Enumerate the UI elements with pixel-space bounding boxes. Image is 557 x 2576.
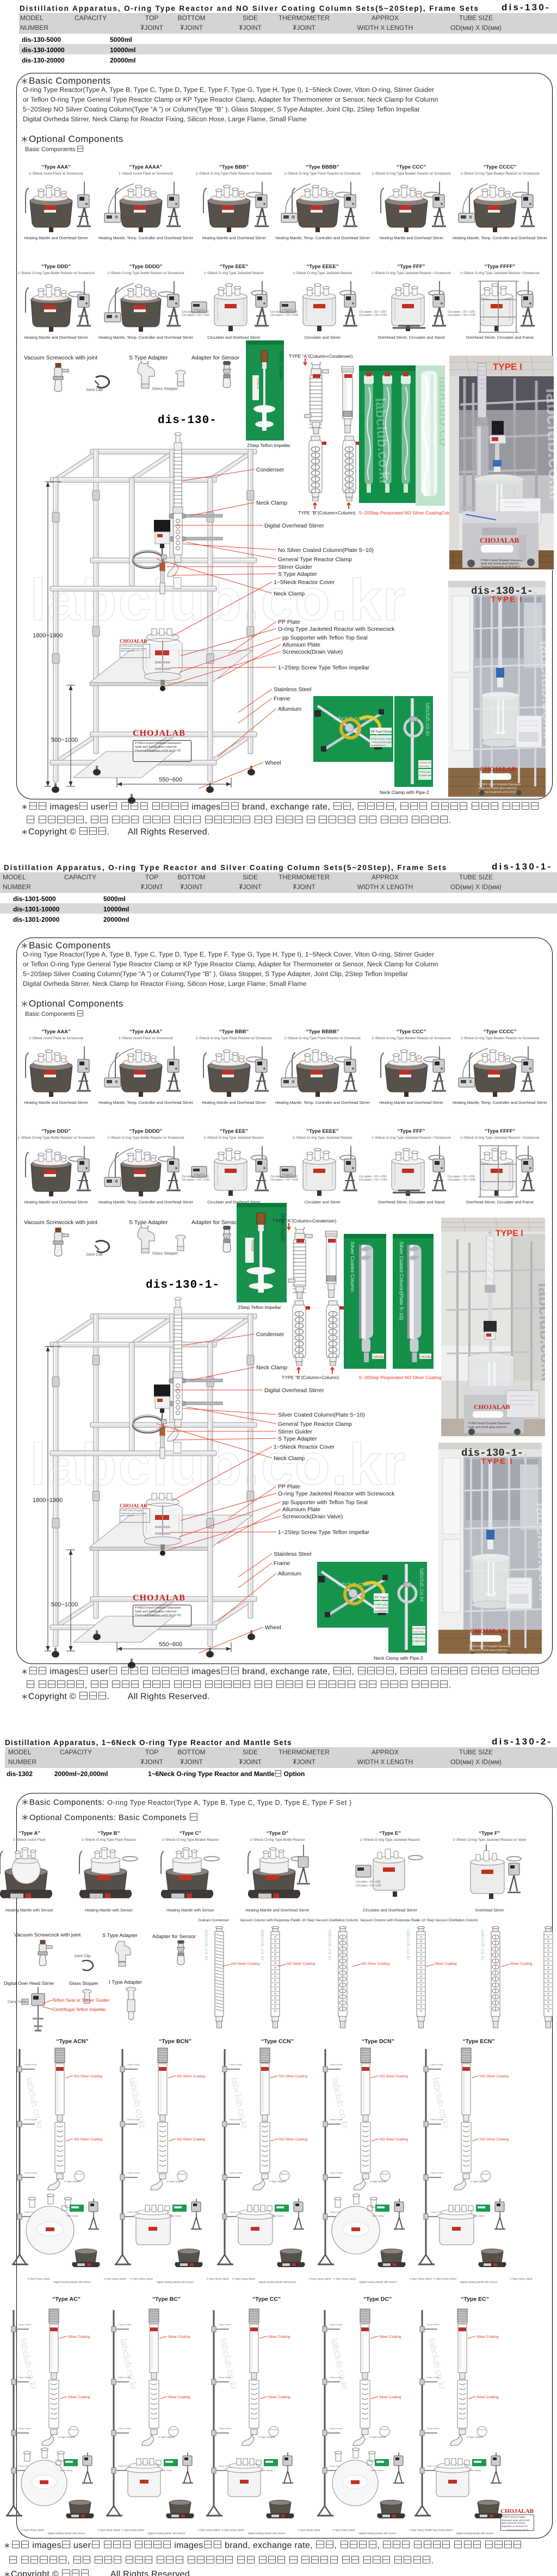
svg-text:Silver Coating: Silver Coating xyxy=(379,2335,401,2339)
svg-text:Silver Coating: Silver Coating xyxy=(168,2335,190,2339)
svg-text:Vaccum: Vaccum xyxy=(280,2172,288,2175)
svg-text:550~600: 550~600 xyxy=(159,777,182,783)
svg-text:pp Supporter with Teflon Top S: pp Supporter with Teflon Top Seal xyxy=(282,635,368,641)
svg-text:Clamp Holder: Clamp Holder xyxy=(426,2427,440,2430)
svg-text:NO Silver Coating: NO Silver Coating xyxy=(177,2075,205,2078)
svg-text:Clamp Holder: Clamp Holder xyxy=(229,2118,243,2121)
svg-text:NO Silver Coating: NO Silver Coating xyxy=(279,2138,307,2142)
svg-text:labclub.co.kr: labclub.co.kr xyxy=(127,2077,147,2130)
svg-text:Stainless Steel: Stainless Steel xyxy=(274,686,311,693)
svg-text:1800~1900: 1800~1900 xyxy=(33,1497,63,1504)
svg-text:Clamp Holder: Clamp Holder xyxy=(18,2427,32,2430)
svg-text:Neck Clamp: Neck Clamp xyxy=(372,2214,385,2217)
svg-text:Stirrer Guider: Stirrer Guider xyxy=(279,1213,287,1242)
svg-text:Thermal Expansion a=32.5x10-7: Thermal Expansion a=32.5x10-7 xyxy=(481,566,521,569)
svg-text:labclub.co.kr: labclub.co.kr xyxy=(229,2077,250,2130)
svg-text:labclub.co.kr: labclub.co.kr xyxy=(424,703,431,736)
svg-text:1~5Neck Reactor Cover: 1~5Neck Reactor Cover xyxy=(274,579,335,586)
svg-text:Digital Overhead Stirrer: Digital Overhead Stirrer xyxy=(264,523,324,529)
svg-text:TYPE I: TYPE I xyxy=(491,595,523,604)
svg-text:PP Plate: PP Plate xyxy=(278,619,300,625)
svg-text:PYREX brand Chojalab Glassware: PYREX brand Chojalab Glassware xyxy=(469,1645,511,1648)
svg-text:Stirrer Guider: Stirrer Guider xyxy=(278,350,284,380)
svg-text:No Silver Coated Column(Plate: No Silver Coated Column(Plate 5~10) xyxy=(278,547,374,554)
svg-text:TYPE I: TYPE I xyxy=(496,1229,523,1238)
svg-text:S Type Adapter: S Type Adapter xyxy=(278,571,317,578)
svg-text:Neck Clamp: Neck Clamp xyxy=(469,2469,481,2472)
svg-text:Clamp Holder: Clamp Holder xyxy=(218,2323,232,2326)
svg-text:labclub.co.kr: labclub.co.kr xyxy=(330,2077,350,2130)
svg-text:Clamp Holder: Clamp Holder xyxy=(426,2376,440,2379)
svg-text:Allumium: Allumium xyxy=(278,1571,301,1577)
svg-text:labclub.co.kr: labclub.co.kr xyxy=(418,1568,425,1602)
svg-text:Vaccum: Vaccum xyxy=(478,2428,486,2431)
svg-text:labclub.co.kr: labclub.co.kr xyxy=(24,2077,45,2130)
svg-text:labclub.co.kr: labclub.co.kr xyxy=(18,2338,39,2391)
svg-text:Neck Clamp: Neck Clamp xyxy=(274,591,305,597)
svg-text:Circulator, +10~+100: Circulator, +10~+100 xyxy=(356,1884,381,1888)
svg-text:Clamp Holder: Clamp Holder xyxy=(127,2171,140,2174)
svg-text:O-ring Type Jacketed Reactor w: O-ring Type Jacketed Reactor with Screwc… xyxy=(278,626,395,632)
svg-text:NO Silver Coating: NO Silver Coating xyxy=(480,2075,509,2078)
svg-text:1~2Step Screw Type Teflon Impe: 1~2Step Screw Type Teflon Impellar xyxy=(278,1529,370,1536)
svg-text:General Type Reactor Clamp: General Type Reactor Clamp xyxy=(278,1421,352,1427)
svg-text:Frame: Frame xyxy=(274,696,290,702)
svg-text:Stainless Steel: Stainless Steel xyxy=(274,1551,311,1557)
svg-text:labclub.co.kr: labclub.co.kr xyxy=(430,2077,451,2130)
svg-text:TYPE I: TYPE I xyxy=(481,1457,513,1466)
svg-text:PYREX brand Chojalab Glassware: PYREX brand Chojalab Glassware xyxy=(479,783,521,786)
svg-text:Clamp Holder: Clamp Holder xyxy=(430,2063,444,2066)
svg-text:1800~1900: 1800~1900 xyxy=(33,632,63,639)
svg-text:Neck Clamp: Neck Clamp xyxy=(169,2214,182,2217)
svg-text:Clamp Holder: Clamp Holder xyxy=(24,2063,38,2066)
svg-text:Clamp Holder: Clamp Holder xyxy=(430,2171,444,2174)
svg-text:labclub.co.kr: labclub.co.kr xyxy=(218,2338,239,2391)
svg-text:Silver Coating: Silver Coating xyxy=(68,2335,90,2339)
svg-text:Clamp Holder: Clamp Holder xyxy=(118,2376,132,2379)
svg-text:Vaccum: Vaccum xyxy=(381,2172,389,2175)
svg-text:S Type Adapter: S Type Adapter xyxy=(278,1436,317,1442)
svg-text:550~600: 550~600 xyxy=(159,1641,182,1648)
svg-text:Clamp Holder: Clamp Holder xyxy=(229,2063,243,2066)
svg-text:Screwcock(Drain Valve): Screwcock(Drain Valve) xyxy=(282,1513,343,1520)
svg-text:labclub.co.kr: labclub.co.kr xyxy=(118,2338,139,2391)
svg-text:Silver Coating: Silver Coating xyxy=(379,2395,401,2399)
svg-text:Silver Coating: Silver Coating xyxy=(68,2395,90,2399)
svg-text:CHOJALAB: CHOJALAB xyxy=(470,1627,506,1635)
svg-text:PYREX brand: PYREX brand xyxy=(413,1637,425,1639)
svg-text:Iwaki and Schott glass tube/ro: Iwaki and Schott glass tube/rod xyxy=(468,1426,506,1429)
svg-text:O-ring Type Jacketed Reactor w: O-ring Type Jacketed Reactor with Screwc… xyxy=(278,1491,395,1497)
svg-text:Vaccum: Vaccum xyxy=(380,2428,388,2431)
svg-text:Clamp Holder: Clamp Holder xyxy=(330,2118,343,2121)
svg-text:Iwaki and Schott glass tube/ro: Iwaki and Schott glass tube/rod xyxy=(469,1649,507,1652)
svg-text:Silver Coating: Silver Coating xyxy=(476,2395,499,2399)
svg-text:NO Silver Coating: NO Silver Coating xyxy=(380,2075,408,2078)
svg-text:Clamp Holder: Clamp Holder xyxy=(18,2323,32,2326)
svg-text:labclub.co.kr: labclub.co.kr xyxy=(329,2338,350,2391)
svg-text:Digital Overhead Stirrer: Digital Overhead Stirrer xyxy=(264,1387,324,1394)
svg-text:Neck Clamp: Neck Clamp xyxy=(274,1455,305,1462)
svg-text:CHOJALAB: CHOJALAB xyxy=(474,1403,510,1411)
svg-text:PYREX brand: PYREX brand xyxy=(419,771,431,773)
svg-text:pp Supporter with Teflon Top S: pp Supporter with Teflon Top Seal xyxy=(282,1499,368,1506)
svg-text:Clamp Holder: Clamp Holder xyxy=(329,2323,343,2326)
svg-text:Vaccum: Vaccum xyxy=(169,2428,177,2431)
svg-text:Stirrer Guider: Stirrer Guider xyxy=(278,1429,313,1435)
svg-text:Neck Clamp: Neck Clamp xyxy=(60,2469,73,2472)
svg-text:Neck Clamp: Neck Clamp xyxy=(372,2469,384,2472)
svg-text:Screwcock(Drain Valve): Screwcock(Drain Valve) xyxy=(282,649,343,655)
svg-text:Vaccum: Vaccum xyxy=(69,2428,77,2431)
svg-text:Vaccum: Vaccum xyxy=(178,2172,186,2175)
svg-text:Allumium: Allumium xyxy=(278,706,301,712)
svg-text:Clamp Holder: Clamp Holder xyxy=(426,2323,440,2326)
svg-text:500~1000: 500~1000 xyxy=(51,737,78,743)
svg-text:Vaccum: Vaccum xyxy=(269,2428,277,2431)
svg-text:Wheel: Wheel xyxy=(265,1624,281,1631)
svg-text:Clamp Holder: Clamp Holder xyxy=(24,2171,38,2174)
svg-text:Clamp Holder: Clamp Holder xyxy=(329,2427,343,2430)
svg-text:Iwaki and Schott glass tube/ro: Iwaki and Schott glass tube/rod xyxy=(479,787,517,790)
svg-text:Circulator, -20~+150: Circulator, -20~+150 xyxy=(356,1880,381,1884)
svg-text:Neck Clamp: Neck Clamp xyxy=(66,2214,79,2217)
svg-text:NO Silver Coating: NO Silver Coating xyxy=(380,2138,408,2142)
svg-text:Clamp Holder: Clamp Holder xyxy=(430,2118,444,2121)
svg-text:Clamp Holder: Clamp Holder xyxy=(127,2118,140,2121)
svg-text:PP Plate: PP Plate xyxy=(278,1483,300,1490)
svg-text:NO Silver Coating: NO Silver Coating xyxy=(74,2138,102,2142)
svg-text:Vaccum: Vaccum xyxy=(481,2172,490,2175)
svg-text:Clamp Holder: Clamp Holder xyxy=(118,2323,132,2326)
svg-text:Clamp Holder: Clamp Holder xyxy=(18,2376,32,2379)
svg-text:Silver Coating: Silver Coating xyxy=(476,2335,499,2339)
svg-text:PYREX brand Chojalab Glassware: PYREX brand Chojalab Glassware xyxy=(468,1422,510,1425)
svg-text:Clamp Holder: Clamp Holder xyxy=(229,2171,243,2174)
svg-text:1~2Step Screw Type Teflon Impe: 1~2Step Screw Type Teflon Impellar xyxy=(278,665,370,671)
svg-text:Clamp Holder: Clamp Holder xyxy=(329,2376,343,2379)
svg-text:Silver Coated Column(Plate 5~1: Silver Coated Column(Plate 5~10) xyxy=(278,1412,365,1418)
svg-text:Frame: Frame xyxy=(274,1560,290,1567)
svg-text:Clamp Holder: Clamp Holder xyxy=(330,2171,343,2174)
svg-text:Neck Clamp: Neck Clamp xyxy=(261,2469,273,2472)
svg-text:Neck Clamp: Neck Clamp xyxy=(419,765,430,767)
svg-text:CHOJALAB: CHOJALAB xyxy=(480,536,519,544)
svg-text:Allumium Plate: Allumium Plate xyxy=(282,1506,320,1513)
svg-text:CHOJALAB: CHOJALAB xyxy=(251,1240,254,1251)
svg-text:Clamp Holder: Clamp Holder xyxy=(218,2376,232,2379)
svg-text:Neck Clamp: Neck Clamp xyxy=(160,2469,173,2472)
svg-text:Iwaki and Schott glass: Iwaki and Schott glass xyxy=(371,741,393,743)
svg-text:Thermal Expansion a=32.5x10-7: Thermal Expansion a=32.5x10-7 xyxy=(469,1653,509,1654)
svg-text:NO Silver Coating: NO Silver Coating xyxy=(279,2075,307,2078)
svg-text:Clamp Holder: Clamp Holder xyxy=(127,2063,140,2066)
svg-text:Stirrer Guider: Stirrer Guider xyxy=(278,564,313,570)
svg-text:NO Silver Coating: NO Silver Coating xyxy=(74,2075,102,2078)
svg-text:KP Type Clamp: KP Type Clamp xyxy=(371,730,392,734)
svg-text:Chojalab Glass: Chojalab Glass xyxy=(419,774,432,777)
svg-text:500~1000: 500~1000 xyxy=(51,1602,78,1608)
svg-text:labclub.co.kr: labclub.co.kr xyxy=(426,2338,447,2391)
svg-text:Silver Coating: Silver Coating xyxy=(268,2395,290,2399)
svg-text:CHOJALAB: CHOJALAB xyxy=(419,761,431,764)
svg-text:CHOJALAB: CHOJALAB xyxy=(257,377,259,389)
svg-text:Clamp Holder: Clamp Holder xyxy=(118,2427,132,2430)
svg-text:Chojalab Glass: Chojalab Glass xyxy=(413,1640,426,1642)
svg-text:Neck Clamp: Neck Clamp xyxy=(413,1631,424,1633)
svg-text:tube/rod a=32.5: tube/rod a=32.5 xyxy=(371,744,387,747)
svg-text:General Type Reactor Clamp: General Type Reactor Clamp xyxy=(278,556,352,563)
svg-text:CHOJALAB: CHOJALAB xyxy=(480,765,516,773)
svg-text:Silver Coated Column: Silver Coated Column xyxy=(349,1242,355,1292)
svg-text:Silver Coating: Silver Coating xyxy=(168,2395,190,2399)
svg-text:Silver Coating: Silver Coating xyxy=(268,2335,290,2339)
svg-text:TYPE I: TYPE I xyxy=(493,362,522,372)
svg-text:Vaccum: Vaccum xyxy=(75,2172,83,2175)
svg-text:Clamp Holder: Clamp Holder xyxy=(330,2063,343,2066)
svg-text:Neck Clamp: Neck Clamp xyxy=(271,2214,284,2217)
svg-text:Clamp Holder: Clamp Holder xyxy=(24,2118,38,2121)
svg-text:Wheel: Wheel xyxy=(265,760,281,766)
svg-text:CHOJALAB: CHOJALAB xyxy=(413,1627,425,1630)
svg-text:NO Silver Coating: NO Silver Coating xyxy=(177,2138,205,2142)
svg-text:Neck Clamp: Neck Clamp xyxy=(473,2214,485,2217)
svg-text:NO Silver Coating: NO Silver Coating xyxy=(480,2138,509,2142)
svg-text:Allumium Plate: Allumium Plate xyxy=(282,642,320,648)
svg-text:Clamp Holder: Clamp Holder xyxy=(218,2427,232,2430)
svg-text:PYREX brand Chojalab: PYREX brand Chojalab xyxy=(371,737,393,740)
svg-text:1~5Neck Reactor Cover: 1~5Neck Reactor Cover xyxy=(274,1444,335,1450)
